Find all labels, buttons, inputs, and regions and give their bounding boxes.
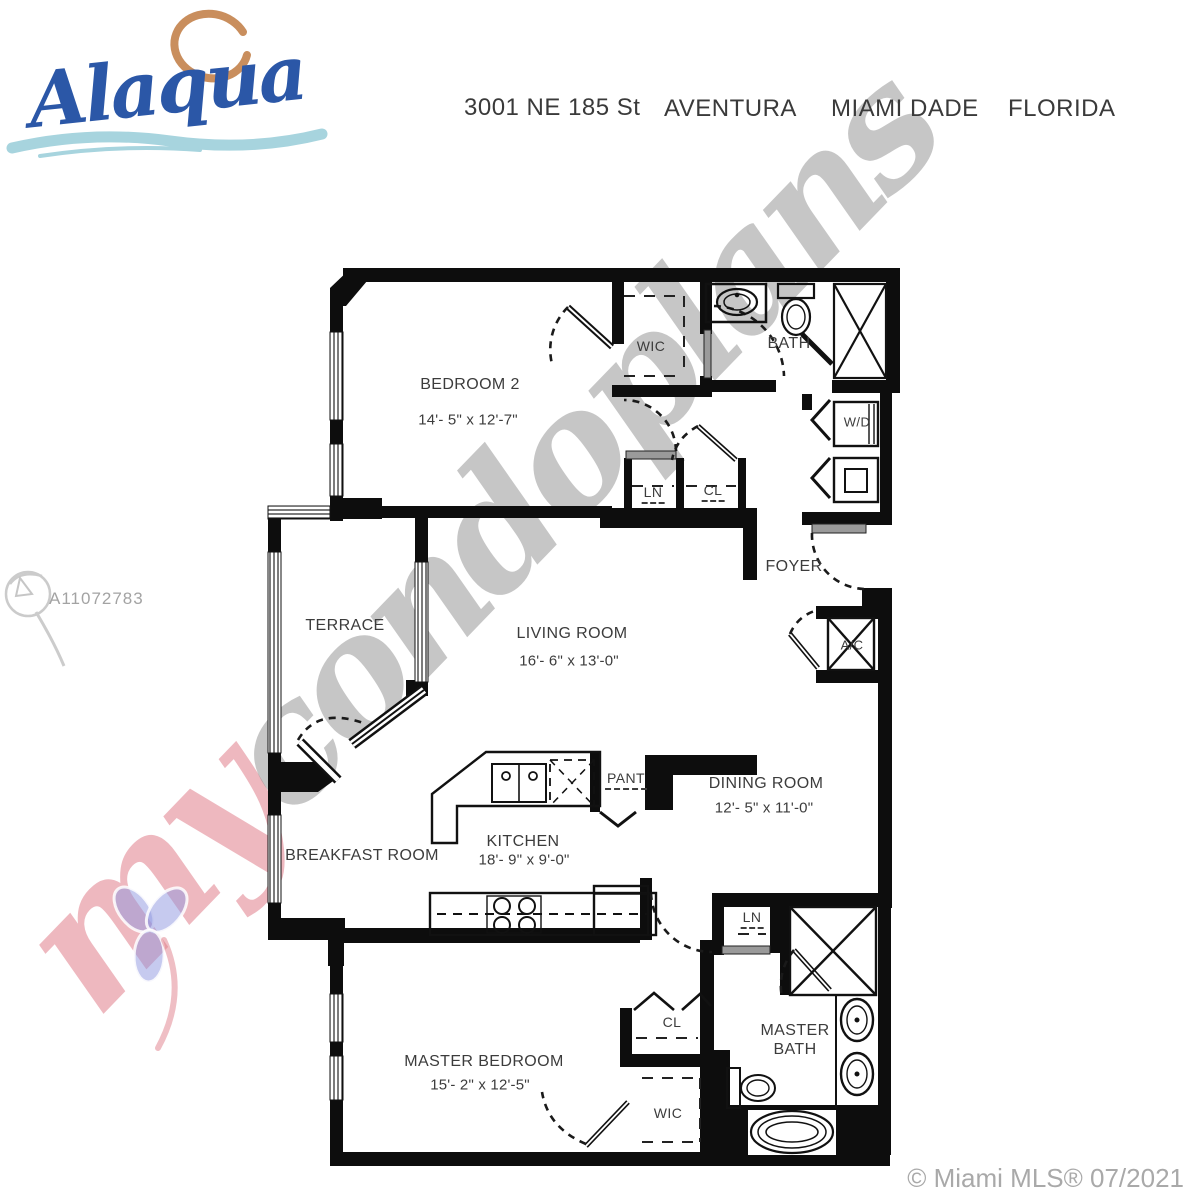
windows [268, 332, 428, 1100]
terrace-side-window [268, 552, 281, 753]
closet-label-ln-top: LN [642, 484, 665, 504]
room-label-master: MASTER BEDROOM [404, 1053, 563, 1071]
kitchen-counter-upper [432, 752, 600, 843]
closet-label-cl-top: CL [702, 482, 725, 502]
room-label-breakfast: BREAKFAST ROOM [285, 847, 439, 865]
terrace-diagonal-window [352, 690, 424, 744]
bedroom2-window [330, 332, 343, 420]
dims-master: 15'- 2" x 12'-5" [430, 1077, 530, 1094]
floorplan-svg [0, 0, 1198, 1200]
room-label-foyer: FOYER [765, 558, 822, 576]
closet-label-cl-master: CL [663, 1014, 682, 1030]
terrace-top-window [268, 506, 330, 519]
room-label-terrace: TERRACE [305, 617, 384, 635]
dims-living: 16'- 6" x 13'-0" [519, 653, 619, 670]
wic-top-shelves [624, 296, 684, 376]
master-vanity-sinks [836, 995, 873, 1108]
closet-label-wic-top: WIC [637, 338, 665, 354]
room-label-kitchen: KITCHEN [486, 833, 559, 851]
dims-kitchen: 18'- 9" x 9'-0" [478, 852, 569, 869]
header-county: MIAMI DADE [831, 95, 979, 123]
bedroom2-window2 [330, 444, 343, 496]
floorplan-sheet: Alaqua 3001 NE 185 St AVENTURA MIAMI DAD… [0, 0, 1198, 1200]
room-label-dining: DINING ROOM [709, 775, 824, 793]
bath-shower [834, 284, 886, 378]
mls-id: A11072783 [49, 589, 144, 609]
header-city: AVENTURA [664, 95, 797, 123]
header-address: 3001 NE 185 St [464, 94, 640, 122]
room-label-bedroom2: BEDROOM 2 [420, 376, 520, 394]
closet-dashes [624, 296, 766, 1142]
master-bathtub [748, 1110, 836, 1155]
terrace-living-window-wall [415, 562, 428, 682]
master-window [330, 994, 343, 1042]
room-label-living: LIVING ROOM [516, 625, 627, 643]
bath-toilet [778, 284, 814, 335]
breakfast-window [268, 815, 281, 903]
label-washer-dryer: W/D [844, 415, 870, 430]
master-toilet [727, 1068, 775, 1108]
closet-label-wic-master: WIC [654, 1105, 682, 1121]
room-label-master-bath: MASTER BATH [751, 1021, 839, 1059]
master-window2 [330, 1056, 343, 1100]
closet-label-pant: PANT [605, 770, 647, 790]
label-ac: A/C [841, 638, 864, 653]
dims-dining: 12'- 5" x 11'-0" [715, 800, 814, 817]
dims-bedroom2: 14'- 5" x 12'-7" [418, 412, 518, 429]
header-state: FLORIDA [1008, 95, 1116, 123]
mls-copyright: © Miami MLS® 07/2021 [907, 1163, 1184, 1194]
bath-sink [706, 284, 766, 322]
master-shower [790, 907, 876, 995]
closet-label-ln-master: LN [741, 909, 764, 929]
room-label-bath: BATH [767, 335, 810, 353]
kitchen-counter-lower [430, 886, 656, 935]
